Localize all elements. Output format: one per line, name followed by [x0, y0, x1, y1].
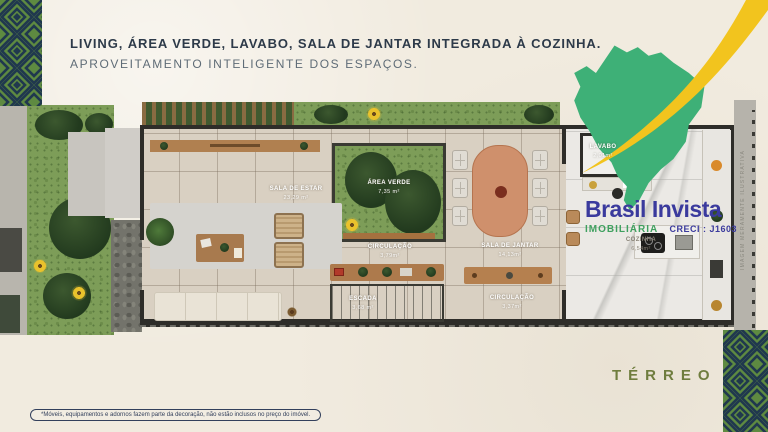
brand-category: IMOBILIÁRIA — [585, 224, 658, 235]
rug — [150, 203, 342, 269]
bush — [314, 105, 348, 124]
brand-creci: CRECI : J1603 — [669, 224, 737, 234]
coffee-table — [196, 234, 244, 262]
gate — [0, 228, 22, 272]
dining-chair — [532, 206, 548, 226]
floor-label: TÉRREO — [612, 367, 717, 384]
disclaimer-note: *Móveis, equipamentos e adornos fazem pa… — [30, 409, 321, 421]
area-verde-patch — [332, 143, 446, 242]
tree — [385, 170, 441, 234]
planter-edge — [343, 233, 435, 239]
dining-bench — [464, 267, 552, 284]
armchair — [274, 213, 304, 239]
diamond-pattern-top-left — [0, 0, 42, 106]
page-title: LIVING, ÁREA VERDE, LAVABO, SALA DE JANT… — [70, 36, 601, 51]
page-subtitle: APROVEITAMENTO INTELIGENTE DOS ESPAÇOS. — [70, 57, 418, 71]
concrete-slab — [68, 132, 106, 216]
dining-table — [472, 145, 528, 237]
potted-plant — [146, 218, 174, 246]
yellow-flower — [71, 285, 87, 301]
yellow-flower — [366, 106, 382, 122]
floor-plant — [286, 306, 298, 318]
stone-path — [111, 220, 142, 332]
diamond-pattern-bottom-right — [723, 330, 768, 432]
centerpiece — [495, 186, 507, 198]
top-garden-strip — [294, 102, 560, 127]
sofa — [154, 292, 282, 321]
side-gate — [0, 295, 20, 333]
wall-kitchen-divider — [562, 290, 566, 325]
sideboard — [330, 264, 444, 281]
wall-left — [140, 290, 144, 325]
wall-left — [140, 125, 144, 240]
dining-chair — [452, 206, 468, 226]
dining-chair — [532, 150, 548, 170]
concrete-slab — [105, 128, 142, 218]
staircase — [330, 284, 444, 322]
console-table — [150, 140, 320, 152]
yellow-flower — [343, 216, 361, 234]
marketing-slide: LIVING, ÁREA VERDE, LAVABO, SALA DE JANT… — [0, 0, 768, 432]
armchair — [274, 242, 304, 268]
dining-chair — [452, 178, 468, 198]
yellow-flower — [33, 259, 47, 273]
pergola — [142, 102, 294, 127]
dining-chair — [532, 178, 548, 198]
bush — [524, 105, 554, 124]
dining-chair — [452, 150, 468, 170]
brazil-map-shape — [574, 45, 704, 210]
brand-name: Brasil Invista — [585, 197, 737, 222]
brand-logo: Brasil Invista IMOBILIÁRIA CRECI : J1603 — [585, 197, 737, 235]
